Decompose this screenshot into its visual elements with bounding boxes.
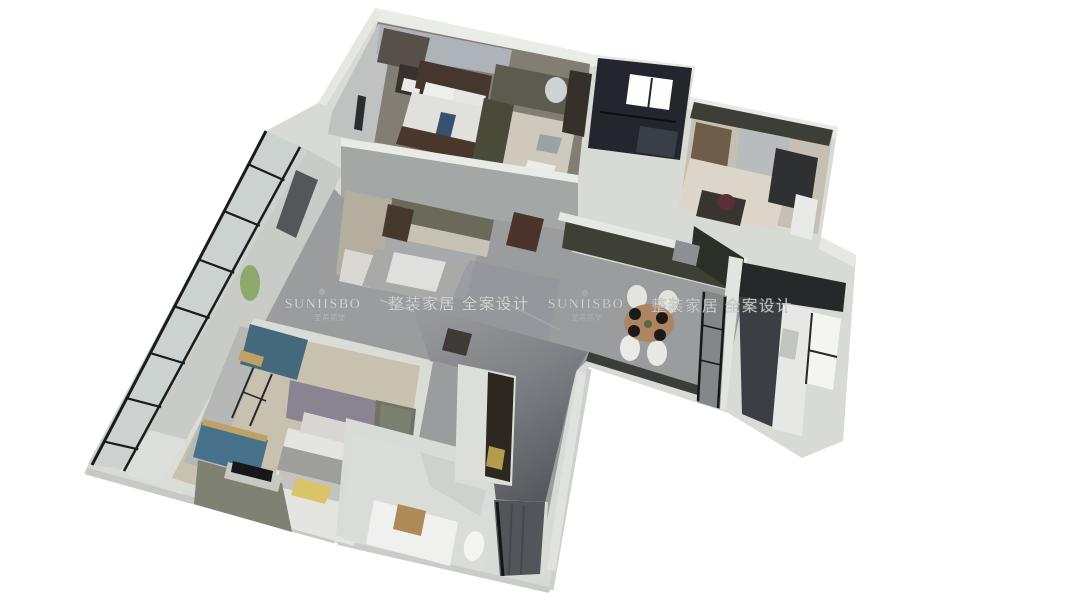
svg-text:圣蒂斯堡: 圣蒂斯堡: [571, 312, 603, 322]
svg-text:❁: ❁: [581, 288, 589, 298]
svg-text:整装家居 全案设计: 整装家居 全案设计: [651, 297, 793, 315]
svg-text:整装家居 全案设计: 整装家居 全案设计: [388, 295, 530, 313]
svg-text:SUNIISBO: SUNIISBO: [285, 297, 362, 312]
svg-text:❁: ❁: [318, 287, 326, 297]
svg-text:SUNIISBO: SUNIISBO: [548, 297, 625, 312]
svg-text:圣蒂斯堡: 圣蒂斯堡: [314, 312, 346, 322]
